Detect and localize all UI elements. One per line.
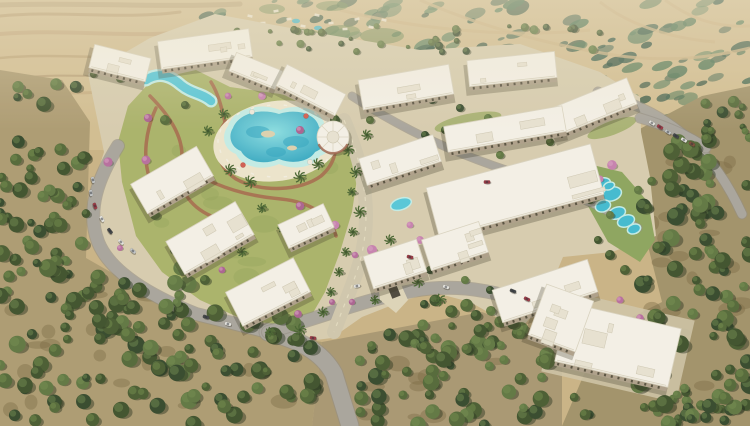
aerial-render [0,0,750,426]
aerial-render-svg [0,0,750,426]
atmosphere-haze [0,0,750,426]
